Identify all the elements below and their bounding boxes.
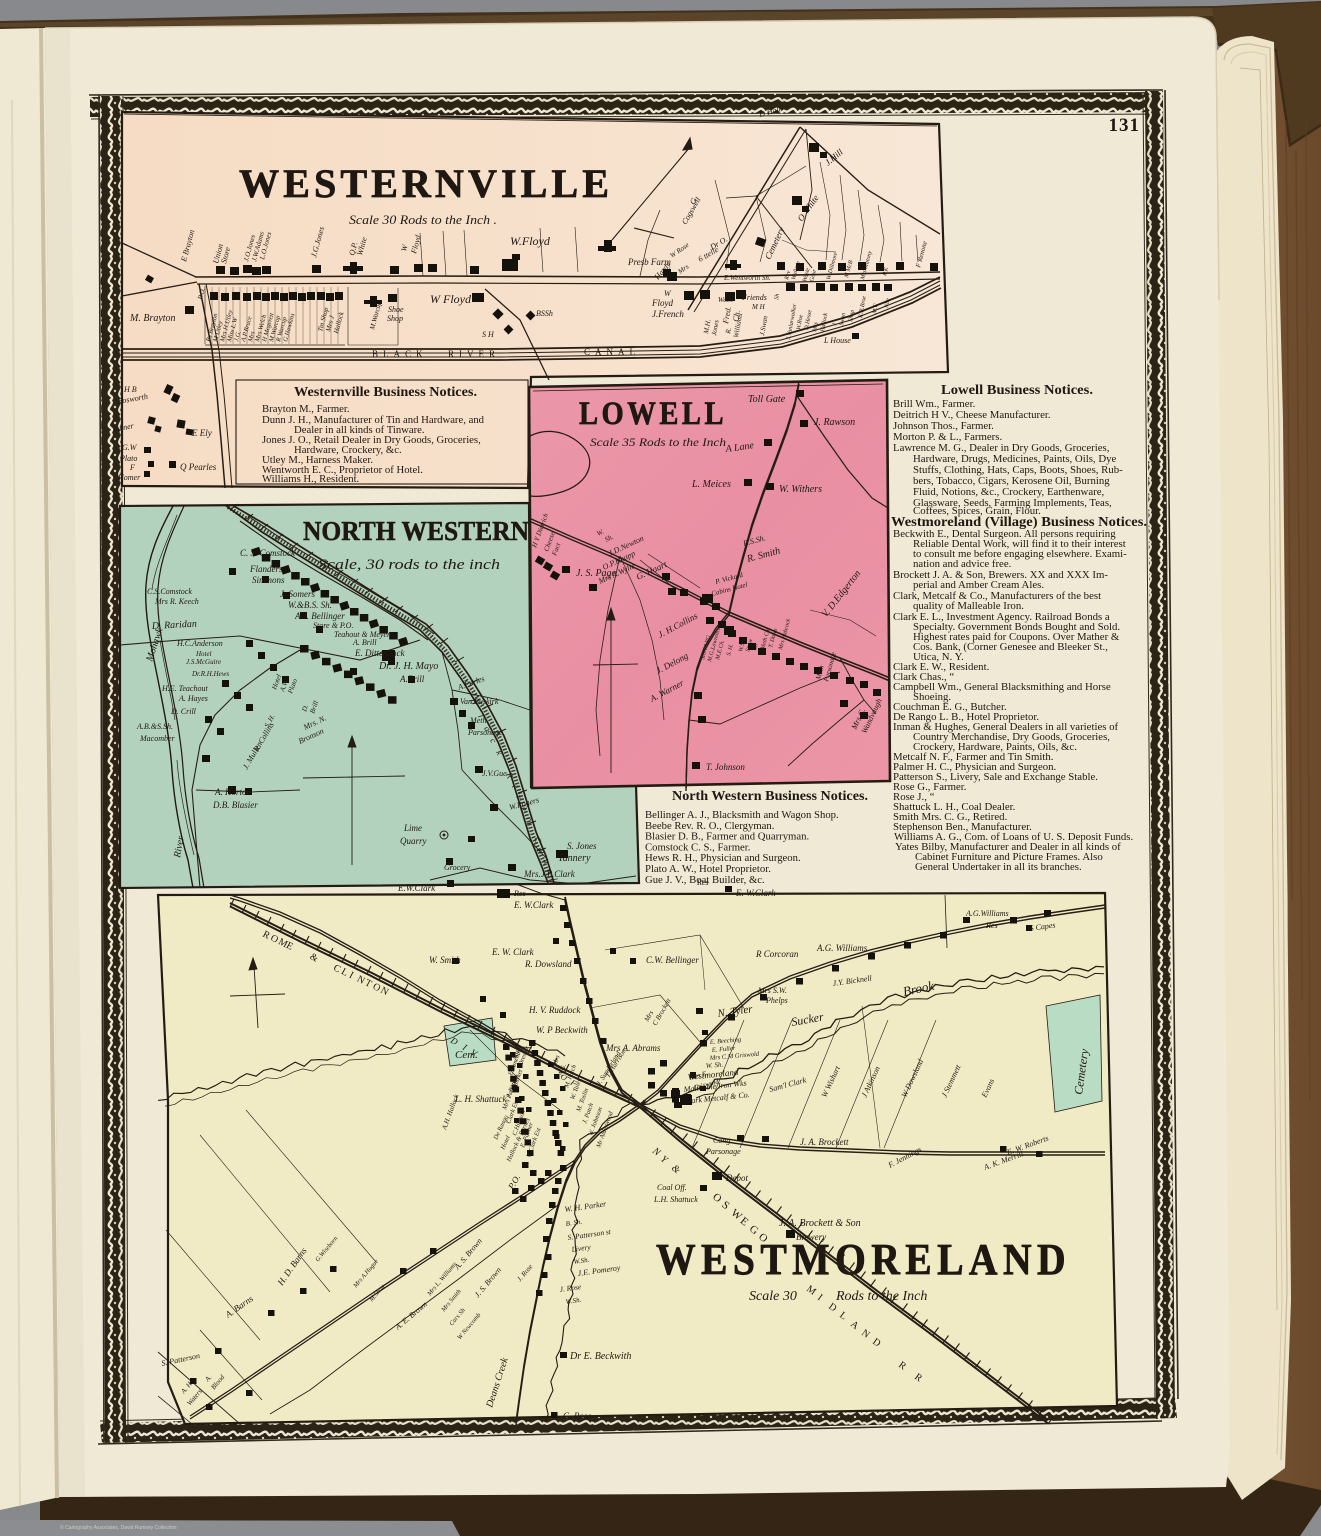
svg-text:Hotel: Hotel (195, 650, 212, 658)
svg-text:A.J. Bellinger: A.J. Bellinger (294, 611, 345, 621)
svg-text:J. A. Brockett: J. A. Brockett (800, 1137, 849, 1147)
svg-text:Mrs R. Keech: Mrs R. Keech (154, 597, 199, 606)
svg-text:Parsonage: Parsonage (467, 728, 503, 737)
svg-text:A. Hayes: A. Hayes (178, 694, 208, 703)
svg-text:NORTH WESTERN: NORTH WESTERN (303, 516, 529, 546)
svg-text:RIVER: RIVER (448, 349, 500, 359)
svg-text:A. Brill: A. Brill (352, 638, 377, 647)
svg-text:Cong.: Cong. (713, 1136, 732, 1145)
svg-text:Quarry: Quarry (400, 836, 427, 846)
svg-text:Lowell Business Notices.: Lowell Business Notices. (941, 382, 1093, 397)
svg-text:Shop: Shop (387, 314, 403, 323)
svg-text:M H: M H (751, 303, 766, 311)
svg-text:W.Floyd: W.Floyd (510, 234, 551, 248)
svg-text:BLACK: BLACK (372, 349, 428, 359)
svg-text:Homer: Homer (117, 473, 141, 482)
svg-text:J. A. Brockett & Son: J. A. Brockett & Son (779, 1218, 861, 1229)
svg-text:Dr. J. H. Mayo: Dr. J. H. Mayo (378, 661, 438, 672)
svg-text:E. W. Clark: E. W. Clark (491, 947, 535, 957)
svg-text:Westernville Business Notices.: Westernville Business Notices. (294, 385, 477, 400)
svg-text:A.Brill: A.Brill (399, 674, 425, 684)
svg-text:T. Johnson: T. Johnson (706, 762, 745, 772)
svg-text:C.W. Bellinger: C.W. Bellinger (646, 955, 699, 965)
svg-text:G. Rose: G. Rose (563, 1411, 592, 1421)
svg-text:Res: Res (696, 878, 709, 887)
svg-text:Toll Gate: Toll Gate (748, 394, 786, 405)
svg-text:Friends: Friends (741, 293, 767, 302)
svg-text:L.H. Shattuck: L.H. Shattuck (653, 1195, 698, 1204)
svg-text:Depot: Depot (725, 1173, 748, 1183)
svg-text:Shoe: Shoe (388, 305, 404, 314)
svg-text:G.W: G.W (122, 443, 138, 452)
svg-text:Mrs.J.L.Clark: Mrs.J.L.Clark (523, 869, 576, 879)
svg-text:Dr E. Beckwith: Dr E. Beckwith (569, 1351, 631, 1362)
svg-text:Flanders: Flanders (249, 564, 283, 574)
svg-text:W. Smith: W. Smith (429, 955, 461, 965)
svg-text:Coal Off.: Coal Off. (657, 1183, 687, 1192)
svg-text:S H: S H (482, 330, 495, 339)
svg-text:WESTERNVILLE: WESTERNVILLE (239, 161, 613, 206)
svg-text:W Floyd: W Floyd (430, 292, 472, 306)
svg-text:H.C.Anderson: H.C.Anderson (176, 639, 223, 648)
svg-text:Meth.: Meth. (469, 716, 488, 725)
svg-text:Scale 30 Rods to the Inch .: Scale 30 Rods to the Inch . (349, 212, 497, 227)
svg-text:A.G.Williams: A.G.Williams (965, 909, 1009, 918)
svg-text:E Ely: E Ely (191, 428, 212, 438)
svg-text:E.Wentworth Sh.: E.Wentworth Sh. (723, 274, 771, 282)
svg-text:W. Sh.: W. Sh. (705, 1060, 723, 1070)
svg-text:E. W.Clark: E. W.Clark (513, 900, 554, 910)
svg-text:D.B. Blasier: D.B. Blasier (212, 800, 258, 810)
svg-text:Brewery: Brewery (796, 1232, 826, 1242)
svg-text:North Western Business Notices: North Western Business Notices. (672, 789, 868, 804)
svg-text:L. Meices: L. Meices (691, 479, 731, 490)
svg-text:C. S. Comstock: C. S. Comstock (240, 548, 296, 558)
svg-text:L. H. Shattuck: L. H. Shattuck (454, 1094, 508, 1104)
svg-text:General Undertaker in all its: General Undertaker in all its branches. (915, 861, 1082, 873)
svg-text:R. Dowsland: R. Dowsland (524, 959, 572, 969)
svg-text:E. W.Clark: E. W.Clark (735, 888, 776, 898)
svg-text:Macomber: Macomber (139, 734, 176, 743)
svg-text:J.V.Gue: J.V.Gue (482, 769, 507, 778)
svg-text:Floyd: Floyd (651, 298, 673, 308)
svg-text:L House: L House (823, 336, 851, 345)
svg-text:Dr.R.H.Hews: Dr.R.H.Hews (191, 670, 229, 678)
svg-text:Q Pearles: Q Pearles (180, 462, 217, 472)
svg-text:Scale 35 Rods to the Inch: Scale 35 Rods to the Inch (590, 435, 726, 449)
svg-text:W.&B.S. Sh.: W.&B.S. Sh. (288, 600, 332, 610)
svg-text:Ween: Ween (718, 296, 733, 304)
svg-text:Mrs S.W.: Mrs S.W. (757, 986, 787, 995)
svg-text:Van Buskirk: Van Buskirk (460, 697, 499, 706)
svg-text:D. Crill: D. Crill (170, 707, 197, 716)
svg-text:J. S. Page: J. S. Page (576, 568, 617, 579)
svg-text:R Corcoran: R Corcoran (755, 949, 799, 959)
svg-text:W. Withers: W. Withers (779, 484, 822, 495)
svg-text:J. Rawson: J. Rawson (814, 417, 855, 428)
svg-text:CANAL: CANAL (584, 347, 640, 357)
svg-text:J.French: J.French (652, 309, 684, 319)
svg-text:H B: H B (123, 385, 137, 394)
svg-text:Grocery: Grocery (444, 863, 471, 872)
svg-text:Store & P.O.: Store & P.O. (313, 621, 353, 630)
svg-text:E. Dittenback: E. Dittenback (354, 648, 405, 658)
svg-text:H. V. Ruddock: H. V. Ruddock (528, 1005, 581, 1015)
svg-text:LOWELL: LOWELL (579, 396, 727, 432)
svg-text:Lime: Lime (403, 823, 422, 833)
svg-text:J.S.McGuire: J.S.McGuire (186, 658, 221, 666)
svg-text:Sh: Sh (774, 293, 781, 300)
svg-text:W. P Beckwith: W. P Beckwith (536, 1025, 588, 1035)
svg-text:Scale 30: Scale 30 (749, 1289, 797, 1304)
svg-text:Williams H., Resident.: Williams H., Resident. (262, 473, 359, 485)
svg-text:Simmons: Simmons (252, 575, 285, 585)
svg-text:© Cartography Associates, Davi: © Cartography Associates, David Rumsey C… (60, 1524, 177, 1531)
svg-text:H.E. Teachout: H.E. Teachout (161, 684, 208, 693)
svg-text:J. Somers: J. Somers (280, 589, 315, 599)
svg-text:A.B.&S.Sh.: A.B.&S.Sh. (136, 722, 173, 731)
svg-text:A.G. Williams: A.G. Williams (816, 943, 868, 953)
svg-text:Plato: Plato (119, 454, 137, 463)
svg-text:BSSh: BSSh (536, 309, 553, 318)
svg-text:Parsonage: Parsonage (705, 1147, 741, 1156)
svg-text:131: 131 (1109, 115, 1141, 136)
svg-text:Phelps: Phelps (765, 996, 788, 1005)
svg-text:A. Horton: A. Horton (214, 787, 252, 797)
svg-text:E.W.Clark: E.W.Clark (397, 883, 436, 893)
svg-text:S. Jones: S. Jones (567, 841, 597, 851)
svg-text:C.S.Comstock: C.S.Comstock (147, 587, 192, 596)
svg-text:Tannery: Tannery (558, 853, 591, 864)
svg-text:F: F (129, 463, 135, 472)
svg-text:WESTMORELAND: WESTMORELAND (656, 1235, 1071, 1284)
svg-text:Scale, 30 rods to the inch: Scale, 30 rods to the inch (318, 557, 500, 573)
svg-text:Res: Res (985, 921, 998, 930)
svg-text:Res: Res (513, 889, 526, 898)
svg-text:M. Brayton: M. Brayton (129, 313, 176, 324)
